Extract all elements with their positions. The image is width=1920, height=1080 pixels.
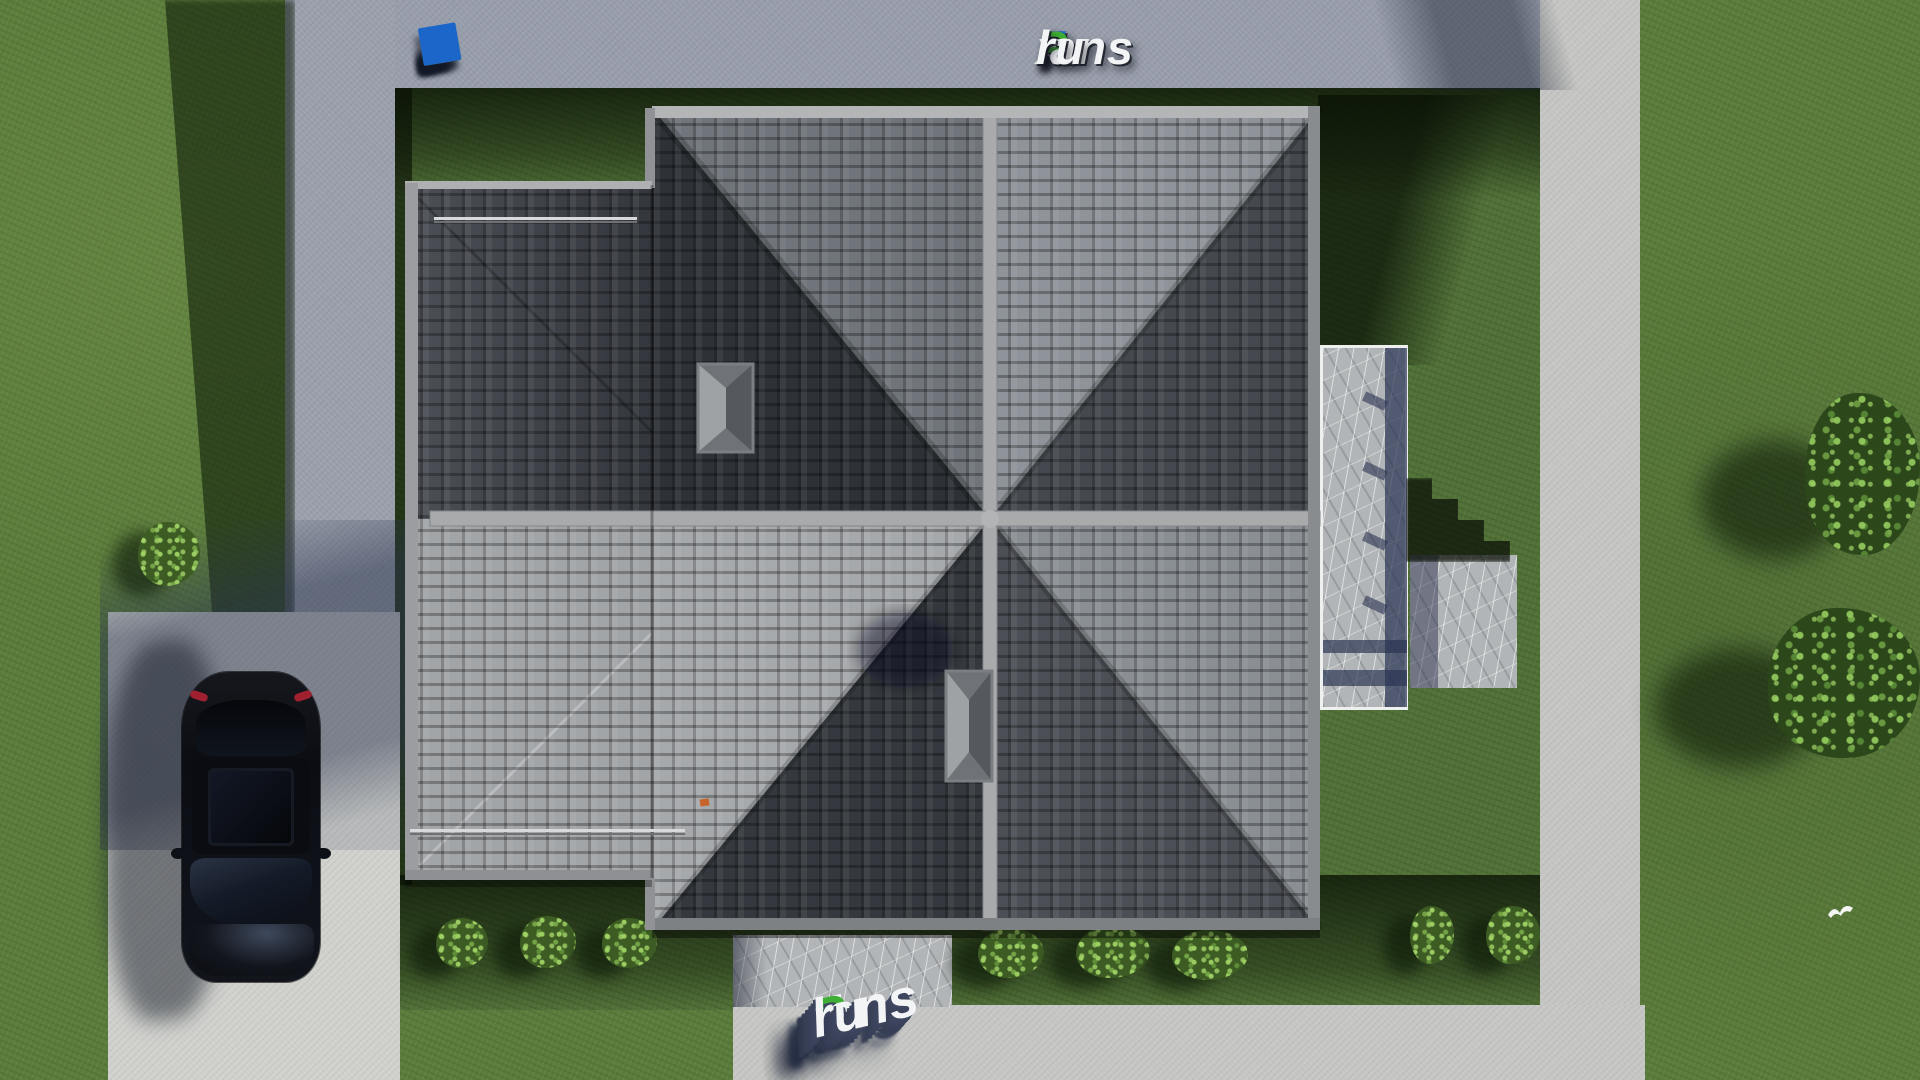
- wing-eave-bottom: [405, 870, 652, 880]
- ridge-center: [981, 510, 999, 528]
- eave-bottom: [652, 918, 1320, 930]
- eave-top: [652, 106, 1320, 118]
- logo-letter: ru: [1036, 20, 1085, 75]
- snow-guard-top: [434, 217, 637, 223]
- skylight-shadow: [857, 612, 953, 688]
- snow-guard-bottom: [410, 829, 685, 835]
- skylight-1: [698, 364, 753, 452]
- skylight-2: [946, 671, 992, 781]
- wing-eave-top: [405, 181, 652, 189]
- eave-right: [1308, 106, 1320, 930]
- roof-vent: [700, 798, 710, 806]
- wing-eave-left: [405, 183, 418, 880]
- ridge-cap-horizontal: [430, 511, 1320, 526]
- house-roof: [0, 0, 1920, 1080]
- aerial-house-render: FixPlans.ru FixPlans.ru: [0, 0, 1920, 1080]
